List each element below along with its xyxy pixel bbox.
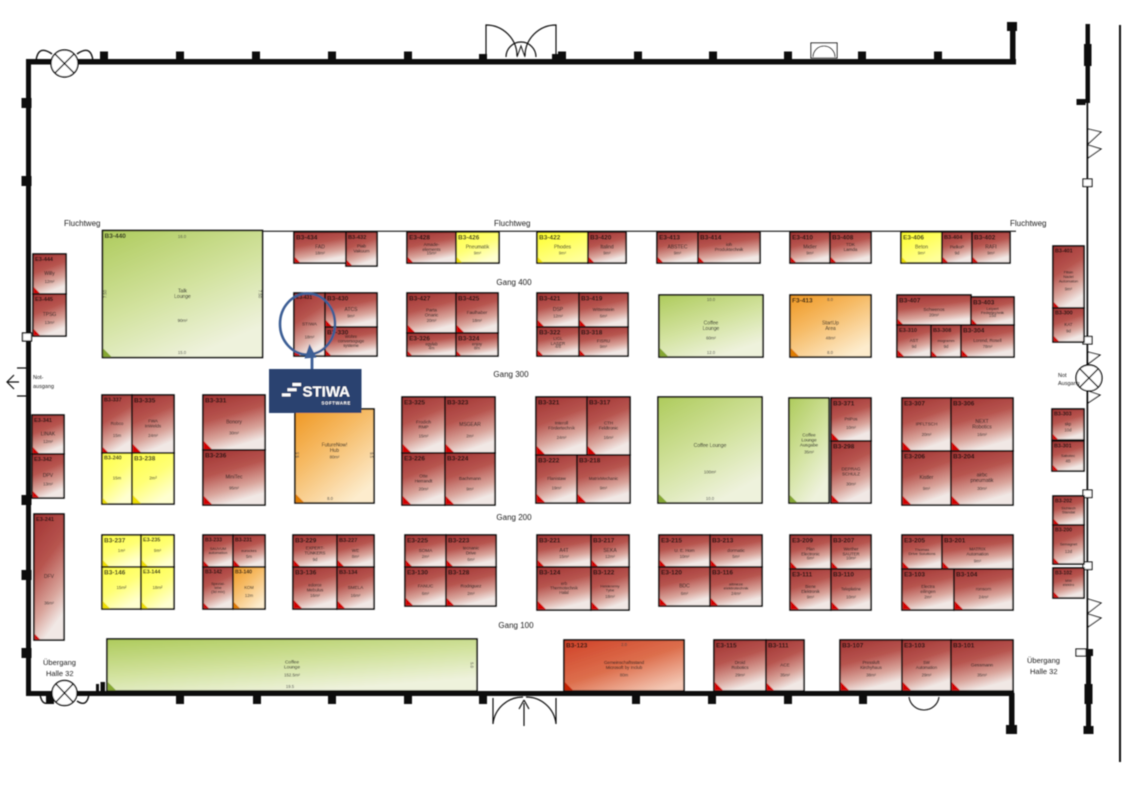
svg-text:E3-103: E3-103 bbox=[904, 572, 925, 579]
svg-text:Ausgabe: Ausgabe bbox=[800, 443, 819, 448]
svg-text:9m²: 9m² bbox=[603, 250, 611, 255]
svg-text:Drive Solutions: Drive Solutions bbox=[909, 551, 936, 556]
svg-text:2.0: 2.0 bbox=[621, 642, 627, 647]
svg-text:SOMA: SOMA bbox=[419, 548, 433, 553]
svg-text:E3-342: E3-342 bbox=[34, 457, 52, 463]
svg-text:B3-331: B3-331 bbox=[205, 398, 227, 405]
svg-text:10.0: 10.0 bbox=[707, 297, 716, 302]
svg-text:12m²: 12m² bbox=[43, 439, 53, 444]
svg-text:6m²: 6m² bbox=[422, 591, 430, 596]
svg-text:Produktechnik: Produktechnik bbox=[715, 247, 744, 252]
svg-text:5m²: 5m² bbox=[732, 554, 740, 559]
svg-text:Robotics: Robotics bbox=[731, 665, 749, 670]
svg-text:B3-107: B3-107 bbox=[842, 643, 864, 650]
svg-text:B3-300: B3-300 bbox=[1055, 311, 1073, 317]
svg-text:B3-427: B3-427 bbox=[409, 296, 431, 303]
svg-text:12.0: 12.0 bbox=[707, 350, 716, 355]
svg-text:Not: Not bbox=[1058, 373, 1067, 379]
svg-text:4/8: 4/8 bbox=[555, 344, 562, 349]
svg-text:B3-237: B3-237 bbox=[104, 538, 126, 545]
svg-text:elektrotechnik: elektrotechnik bbox=[724, 586, 749, 591]
svg-text:Lounge: Lounge bbox=[174, 294, 191, 300]
svg-text:15m²: 15m² bbox=[116, 585, 127, 590]
svg-text:15m: 15m bbox=[113, 476, 122, 481]
svg-text:E3-209: E3-209 bbox=[792, 538, 813, 545]
svg-text:eurockes: eurockes bbox=[241, 549, 257, 553]
svg-text:AST: AST bbox=[910, 338, 919, 343]
svg-text:95m²: 95m² bbox=[229, 486, 239, 491]
svg-text:B3-240: B3-240 bbox=[104, 456, 122, 462]
svg-text:B3-425: B3-425 bbox=[458, 296, 480, 303]
svg-text:DFV: DFV bbox=[44, 574, 55, 580]
svg-text:Robco: Robco bbox=[111, 421, 124, 426]
svg-text:Willy: Willy bbox=[44, 271, 55, 277]
svg-text:ausgang: ausgang bbox=[33, 384, 54, 390]
svg-text:E3-115: E3-115 bbox=[716, 643, 737, 650]
svg-text:9m²: 9m² bbox=[1065, 287, 1073, 292]
svg-text:B3-142: B3-142 bbox=[205, 569, 222, 575]
svg-text:9m²: 9m² bbox=[806, 250, 814, 255]
svg-text:29m²: 29m² bbox=[735, 673, 745, 678]
svg-text:Vakuum: Vakuum bbox=[353, 248, 369, 253]
svg-text:8m: 8m bbox=[474, 346, 480, 351]
svg-text:Not-: Not- bbox=[33, 375, 44, 381]
svg-text:18m²: 18m² bbox=[472, 318, 482, 323]
svg-text:7.50: 7.50 bbox=[103, 289, 108, 298]
svg-text:B3-146: B3-146 bbox=[104, 570, 126, 577]
svg-text:B3-213: B3-213 bbox=[712, 538, 734, 545]
svg-text:B3-414: B3-414 bbox=[700, 235, 722, 242]
svg-text:B3-401: B3-401 bbox=[1055, 249, 1073, 255]
svg-text:9m²: 9m² bbox=[347, 313, 355, 318]
svg-text:13m²: 13m² bbox=[43, 482, 53, 487]
svg-text:Teleplatine: Teleplatine bbox=[841, 587, 862, 592]
svg-text:10m²: 10m² bbox=[846, 555, 856, 560]
svg-text:18m²: 18m² bbox=[152, 585, 163, 590]
svg-text:E3-111: E3-111 bbox=[792, 572, 813, 579]
svg-text:Automation: Automation bbox=[966, 551, 989, 556]
svg-text:13m²: 13m² bbox=[45, 320, 55, 325]
svg-text:B3-434: B3-434 bbox=[296, 235, 318, 242]
svg-text:35m²: 35m² bbox=[804, 450, 814, 455]
svg-text:Gessmann: Gessmann bbox=[971, 663, 994, 668]
svg-text:9m²: 9m² bbox=[974, 558, 982, 563]
svg-text:80m: 80m bbox=[620, 673, 629, 678]
svg-text:Mebulus: Mebulus bbox=[307, 587, 324, 592]
svg-text:9d: 9d bbox=[1066, 328, 1071, 333]
svg-text:Standal: Standal bbox=[1062, 511, 1075, 515]
svg-text:U. E. Hom: U. E. Hom bbox=[674, 548, 695, 553]
svg-text:152.5m²: 152.5m² bbox=[284, 672, 300, 677]
svg-text:B3-238: B3-238 bbox=[134, 456, 156, 463]
svg-text:12m: 12m bbox=[245, 593, 254, 598]
svg-text:B3-407: B3-407 bbox=[899, 298, 921, 305]
svg-text:10d: 10d bbox=[1064, 427, 1072, 432]
svg-text:Übergang: Übergang bbox=[1027, 656, 1060, 665]
svg-text:9m²: 9m² bbox=[600, 344, 608, 349]
svg-text:35m²: 35m² bbox=[977, 673, 987, 678]
svg-text:B3-419: B3-419 bbox=[581, 296, 603, 303]
svg-text:B3-440: B3-440 bbox=[105, 233, 127, 240]
svg-text:B3-123: B3-123 bbox=[566, 643, 588, 650]
svg-text:Hub: Hub bbox=[330, 448, 339, 454]
svg-text:Coffee Lounge: Coffee Lounge bbox=[694, 443, 727, 449]
svg-text:35m²: 35m² bbox=[780, 673, 790, 678]
svg-text:9m²: 9m² bbox=[674, 250, 682, 255]
svg-text:2m²: 2m² bbox=[149, 476, 157, 481]
svg-text:20m²: 20m² bbox=[419, 486, 429, 491]
svg-text:E3-428: E3-428 bbox=[409, 235, 430, 242]
svg-text:MatrixMechanic: MatrixMechanic bbox=[589, 476, 618, 481]
svg-text:B3-202: B3-202 bbox=[1055, 498, 1072, 504]
svg-text:RMP: RMP bbox=[419, 424, 429, 429]
svg-text:E3-410: E3-410 bbox=[792, 235, 813, 242]
svg-text:Rodriguez: Rodriguez bbox=[461, 584, 483, 589]
svg-text:Fluchtweg: Fluchtweg bbox=[1010, 219, 1046, 228]
svg-text:B3-111: B3-111 bbox=[768, 643, 789, 650]
svg-text:Gang 100: Gang 100 bbox=[498, 621, 534, 630]
svg-text:B3-317: B3-317 bbox=[589, 400, 611, 407]
svg-text:4m: 4m bbox=[429, 346, 435, 351]
svg-text:20m²: 20m² bbox=[929, 313, 939, 318]
svg-text:B3-116: B3-116 bbox=[712, 570, 733, 577]
svg-text:B3-217: B3-217 bbox=[593, 538, 615, 545]
svg-text:E3-235: E3-235 bbox=[143, 538, 160, 544]
svg-text:B3-140: B3-140 bbox=[235, 569, 252, 575]
svg-text:19m²: 19m² bbox=[552, 486, 562, 491]
svg-text:Gang 400: Gang 400 bbox=[496, 278, 532, 287]
svg-text:100m²: 100m² bbox=[704, 469, 717, 474]
svg-text:B3-421: B3-421 bbox=[539, 296, 561, 303]
svg-text:5.0: 5.0 bbox=[470, 662, 475, 668]
svg-text:E3-310: E3-310 bbox=[899, 328, 917, 334]
svg-text:Kistler: Kistler bbox=[920, 475, 934, 481]
svg-text:1m²: 1m² bbox=[118, 548, 126, 553]
svg-text:Kirchyhaus: Kirchyhaus bbox=[860, 665, 883, 670]
svg-text:8m²: 8m² bbox=[352, 554, 360, 559]
svg-text:B3-420: B3-420 bbox=[590, 235, 612, 242]
svg-text:Area: Area bbox=[825, 326, 836, 332]
svg-text:9d: 9d bbox=[955, 250, 960, 255]
svg-text:Halle 32: Halle 32 bbox=[1030, 667, 1058, 676]
svg-text:Übergang: Übergang bbox=[43, 658, 76, 667]
svg-text:9m²: 9m² bbox=[466, 486, 474, 491]
svg-text:E3-206: E3-206 bbox=[904, 454, 925, 461]
svg-text:BDC: BDC bbox=[679, 584, 690, 590]
svg-text:B3-136: B3-136 bbox=[295, 570, 317, 577]
svg-text:WE: WE bbox=[352, 548, 359, 553]
svg-text:E3-413: E3-413 bbox=[659, 235, 680, 242]
svg-text:Elektronik: Elektronik bbox=[801, 589, 820, 594]
svg-text:E3-120: E3-120 bbox=[661, 570, 682, 577]
svg-text:90m²: 90m² bbox=[178, 318, 188, 323]
svg-text:B3-207: B3-207 bbox=[833, 538, 855, 545]
svg-text:B3-426: B3-426 bbox=[458, 235, 480, 242]
svg-text:B3-321: B3-321 bbox=[538, 400, 560, 407]
svg-text:E3-307: E3-307 bbox=[904, 401, 925, 408]
svg-text:B3-110: B3-110 bbox=[833, 572, 854, 579]
svg-text:B3-134: B3-134 bbox=[339, 570, 358, 576]
svg-text:B3-301: B3-301 bbox=[1054, 444, 1072, 450]
svg-text:Sabotec: Sabotec bbox=[1061, 454, 1075, 458]
svg-text:24m²: 24m² bbox=[731, 591, 741, 596]
svg-text:dormatic: dormatic bbox=[727, 548, 745, 553]
svg-text:B3-124: B3-124 bbox=[539, 570, 561, 577]
svg-text:B3-408: B3-408 bbox=[832, 235, 854, 242]
svg-text:(3d mix): (3d mix) bbox=[211, 590, 225, 594]
svg-text:B3-318: B3-318 bbox=[581, 330, 603, 337]
svg-text:E3-103: E3-103 bbox=[904, 643, 925, 650]
svg-text:B3-233: B3-233 bbox=[205, 537, 222, 543]
svg-text:20m²: 20m² bbox=[427, 318, 437, 323]
svg-text:skp: skp bbox=[1065, 422, 1072, 427]
svg-text:Lamda: Lamda bbox=[844, 247, 858, 252]
svg-text:E3-205: E3-205 bbox=[904, 538, 925, 545]
svg-text:FANUC: FANUC bbox=[418, 584, 434, 589]
svg-text:Fluchtweg: Fluchtweg bbox=[64, 219, 100, 228]
svg-text:B3-335: B3-335 bbox=[134, 398, 156, 405]
svg-text:B3-229: B3-229 bbox=[295, 538, 317, 545]
svg-text:B3-432: B3-432 bbox=[348, 235, 366, 241]
svg-text:systeme: systeme bbox=[343, 343, 359, 348]
svg-text:24m²: 24m² bbox=[148, 433, 158, 438]
svg-text:B3-102: B3-102 bbox=[1055, 570, 1072, 576]
svg-text:Microsoft by Inclub: Microsoft by Inclub bbox=[606, 665, 643, 670]
svg-text:7.50: 7.50 bbox=[258, 290, 263, 299]
svg-text:B3-337: B3-337 bbox=[104, 398, 122, 404]
svg-text:18m²: 18m² bbox=[605, 594, 615, 599]
svg-text:9m²: 9m² bbox=[807, 595, 815, 600]
svg-text:B3-101: B3-101 bbox=[953, 643, 975, 650]
svg-text:15m²: 15m² bbox=[427, 250, 437, 255]
svg-text:2m²: 2m² bbox=[466, 433, 474, 438]
svg-text:E3-226: E3-226 bbox=[404, 456, 425, 463]
svg-text:E3-341: E3-341 bbox=[34, 418, 52, 424]
svg-text:B3-204: B3-204 bbox=[953, 454, 975, 461]
svg-text:E3-225: E3-225 bbox=[407, 538, 428, 545]
svg-text:2m²: 2m² bbox=[467, 591, 475, 596]
svg-text:pneumatik: pneumatik bbox=[970, 478, 994, 484]
svg-text:B3-224: B3-224 bbox=[447, 456, 469, 463]
svg-text:automation: automation bbox=[209, 551, 228, 555]
svg-text:2m²: 2m² bbox=[924, 595, 932, 600]
svg-text:6m²: 6m² bbox=[807, 555, 815, 560]
svg-text:E3-144: E3-144 bbox=[143, 570, 160, 576]
svg-text:78m²: 78m² bbox=[983, 344, 993, 349]
svg-text:B3-304: B3-304 bbox=[963, 328, 985, 335]
svg-text:mogramm: mogramm bbox=[937, 339, 954, 343]
svg-text:9m²: 9m² bbox=[987, 250, 995, 255]
svg-text:ATCS: ATCS bbox=[345, 307, 359, 313]
svg-text:15m²: 15m² bbox=[419, 433, 429, 438]
svg-text:9.5: 9.5 bbox=[369, 452, 374, 458]
svg-text:18m²: 18m² bbox=[305, 334, 315, 339]
svg-text:F3-413: F3-413 bbox=[792, 298, 813, 305]
svg-text:Semagnet: Semagnet bbox=[1060, 543, 1078, 547]
svg-text:6m²: 6m² bbox=[681, 591, 689, 596]
svg-text:IPFLTSCH: IPFLTSCH bbox=[916, 422, 938, 427]
svg-text:80m²: 80m² bbox=[330, 455, 340, 460]
svg-text:20m²: 20m² bbox=[922, 432, 932, 437]
svg-text:10m²: 10m² bbox=[846, 425, 856, 430]
svg-text:STIWA: STIWA bbox=[302, 322, 318, 328]
svg-text:B3-308: B3-308 bbox=[933, 328, 951, 334]
svg-text:Feldtronic: Feldtronic bbox=[599, 425, 619, 430]
svg-text:10.0: 10.0 bbox=[706, 496, 715, 501]
svg-text:Fördertechnik: Fördertechnik bbox=[548, 425, 576, 430]
svg-text:B3-236: B3-236 bbox=[205, 453, 227, 460]
svg-text:E3-215: E3-215 bbox=[661, 538, 682, 545]
svg-text:4B: 4B bbox=[1065, 459, 1070, 464]
svg-text:B3-128: B3-128 bbox=[448, 570, 470, 577]
svg-text:Bachmann: Bachmann bbox=[459, 476, 481, 481]
svg-text:9.5: 9.5 bbox=[295, 451, 300, 457]
svg-text:B3-404: B3-404 bbox=[944, 235, 963, 241]
svg-text:B3-122: B3-122 bbox=[593, 570, 615, 577]
svg-text:E3-406: E3-406 bbox=[903, 235, 924, 242]
svg-text:E3-130: E3-130 bbox=[407, 570, 428, 577]
svg-text:TÜNKERS: TÜNKERS bbox=[305, 550, 326, 555]
svg-text:B3-306: B3-306 bbox=[953, 401, 975, 408]
svg-text:E3-444: E3-444 bbox=[35, 257, 54, 263]
svg-text:Wittenstein: Wittenstein bbox=[593, 307, 615, 312]
svg-text:B3-222: B3-222 bbox=[538, 458, 560, 465]
svg-text:KOM: KOM bbox=[244, 585, 254, 590]
svg-text:9d: 9d bbox=[313, 557, 318, 562]
svg-text:Halle 32: Halle 32 bbox=[46, 669, 74, 678]
svg-text:STIWA: STIWA bbox=[303, 384, 351, 401]
svg-text:TPSG: TPSG bbox=[43, 312, 57, 318]
svg-text:ronsorn: ronsorn bbox=[976, 587, 992, 592]
svg-text:16m²: 16m² bbox=[977, 432, 987, 437]
svg-text:Robotics: Robotics bbox=[972, 424, 992, 430]
svg-text:30m²: 30m² bbox=[977, 486, 987, 491]
svg-text:Coffee: Coffee bbox=[285, 659, 299, 665]
svg-text:ACE: ACE bbox=[780, 663, 789, 668]
svg-text:B3-227: B3-227 bbox=[339, 538, 357, 544]
svg-text:Halal: Halal bbox=[559, 590, 569, 595]
svg-text:Faulhaber: Faulhaber bbox=[467, 310, 488, 315]
svg-text:Onaric: Onaric bbox=[425, 313, 439, 318]
svg-text:10m²: 10m² bbox=[680, 554, 690, 559]
svg-text:10m²: 10m² bbox=[846, 595, 856, 600]
svg-text:8.0: 8.0 bbox=[327, 496, 333, 501]
svg-text:Fluchtweg: Fluchtweg bbox=[494, 219, 530, 228]
svg-text:5m: 5m bbox=[246, 554, 252, 559]
svg-text:Lounge: Lounge bbox=[284, 665, 300, 671]
svg-text:Bonory: Bonory bbox=[226, 420, 242, 426]
svg-text:KAT: KAT bbox=[1064, 322, 1073, 327]
svg-text:Tybe: Tybe bbox=[606, 588, 615, 593]
svg-text:SCHULZ: SCHULZ bbox=[842, 471, 860, 476]
svg-text:9m²: 9m² bbox=[474, 250, 482, 255]
svg-text:18m²: 18m² bbox=[315, 250, 325, 255]
svg-text:12m²: 12m² bbox=[605, 554, 615, 559]
svg-text:Schwenos: Schwenos bbox=[923, 307, 945, 312]
svg-text:15d: 15d bbox=[989, 313, 997, 318]
svg-text:PriPos: PriPos bbox=[845, 417, 859, 422]
svg-text:24m²: 24m² bbox=[979, 595, 989, 600]
svg-text:B3-201: B3-201 bbox=[944, 538, 966, 545]
svg-text:B3-323: B3-323 bbox=[447, 400, 469, 407]
svg-text:DPV: DPV bbox=[43, 473, 54, 479]
svg-text:6m²: 6m² bbox=[600, 313, 608, 318]
svg-text:Gang 300: Gang 300 bbox=[493, 370, 529, 379]
svg-text:Ausgang: Ausgang bbox=[1058, 381, 1080, 387]
svg-text:B3-430: B3-430 bbox=[327, 296, 349, 303]
svg-text:38m²: 38m² bbox=[866, 673, 876, 678]
svg-text:MSGEAR: MSGEAR bbox=[459, 422, 481, 428]
svg-text:FISRU: FISRU bbox=[597, 339, 610, 344]
svg-text:12m²: 12m² bbox=[553, 313, 563, 318]
svg-text:B3-298: B3-298 bbox=[833, 444, 855, 451]
svg-text:16m²: 16m² bbox=[351, 593, 361, 598]
svg-text:9m²: 9m² bbox=[600, 486, 608, 491]
svg-text:E3-445: E3-445 bbox=[35, 297, 53, 303]
svg-text:B3-200: B3-200 bbox=[1055, 527, 1072, 533]
svg-text:16m²: 16m² bbox=[604, 435, 614, 440]
svg-text:LINAK: LINAK bbox=[41, 432, 56, 438]
svg-text:30m²: 30m² bbox=[229, 431, 239, 436]
svg-text:9d: 9d bbox=[944, 344, 949, 349]
svg-text:Drive: Drive bbox=[466, 550, 477, 555]
svg-text:29m²: 29m² bbox=[922, 673, 932, 678]
svg-text:9m²: 9m² bbox=[918, 250, 926, 255]
svg-text:30m²: 30m² bbox=[846, 482, 856, 487]
svg-text:9m²: 9m² bbox=[923, 486, 931, 491]
svg-text:B3-402: B3-402 bbox=[974, 235, 996, 242]
svg-text:60m²: 60m² bbox=[706, 336, 716, 341]
svg-text:E3-325: E3-325 bbox=[404, 400, 425, 407]
svg-text:19.5: 19.5 bbox=[286, 684, 295, 689]
svg-text:B3-422: B3-422 bbox=[539, 235, 561, 242]
svg-text:InWelds: InWelds bbox=[145, 423, 162, 428]
svg-text:Gang 200: Gang 200 bbox=[496, 513, 532, 522]
svg-text:8.0: 8.0 bbox=[827, 297, 833, 302]
svg-text:B3-104: B3-104 bbox=[956, 572, 978, 579]
svg-text:15m: 15m bbox=[113, 433, 122, 438]
svg-text:Herrandt: Herrandt bbox=[415, 478, 433, 483]
svg-text:Automation: Automation bbox=[916, 665, 938, 670]
svg-text:6m²: 6m² bbox=[467, 557, 475, 562]
svg-text:36m²: 36m² bbox=[44, 601, 54, 606]
svg-text:B3-221: B3-221 bbox=[539, 538, 561, 545]
svg-text:PielkoP: PielkoP bbox=[950, 245, 964, 250]
svg-text:DSP: DSP bbox=[553, 307, 564, 313]
svg-text:B3-231: B3-231 bbox=[235, 537, 252, 543]
svg-text:8.0: 8.0 bbox=[827, 350, 833, 355]
svg-text:16m²: 16m² bbox=[310, 593, 320, 598]
svg-text:15m²: 15m² bbox=[559, 554, 569, 559]
svg-text:B3-303: B3-303 bbox=[1054, 412, 1072, 418]
svg-text:16.0: 16.0 bbox=[178, 234, 187, 239]
svg-text:48m²: 48m² bbox=[826, 336, 836, 341]
svg-text:elektro: elektro bbox=[1063, 583, 1074, 587]
svg-text:Flanistaw: Flanistaw bbox=[547, 476, 566, 481]
svg-text:2m²: 2m² bbox=[422, 554, 430, 559]
svg-text:9m²: 9m² bbox=[154, 548, 162, 553]
svg-text:MiniTec: MiniTec bbox=[226, 475, 243, 481]
svg-text:12m²: 12m² bbox=[45, 279, 55, 284]
svg-text:9d: 9d bbox=[912, 344, 917, 349]
svg-text:E3-241: E3-241 bbox=[36, 517, 54, 523]
svg-text:B3-223: B3-223 bbox=[448, 538, 470, 545]
svg-text:Automaton: Automaton bbox=[1059, 278, 1078, 283]
svg-text:eilingen: eilingen bbox=[920, 589, 936, 594]
svg-text:Lorend, Rosell: Lorend, Rosell bbox=[973, 338, 1001, 343]
svg-text:B3-218: B3-218 bbox=[579, 458, 601, 465]
svg-text:SMELA: SMELA bbox=[348, 585, 365, 590]
